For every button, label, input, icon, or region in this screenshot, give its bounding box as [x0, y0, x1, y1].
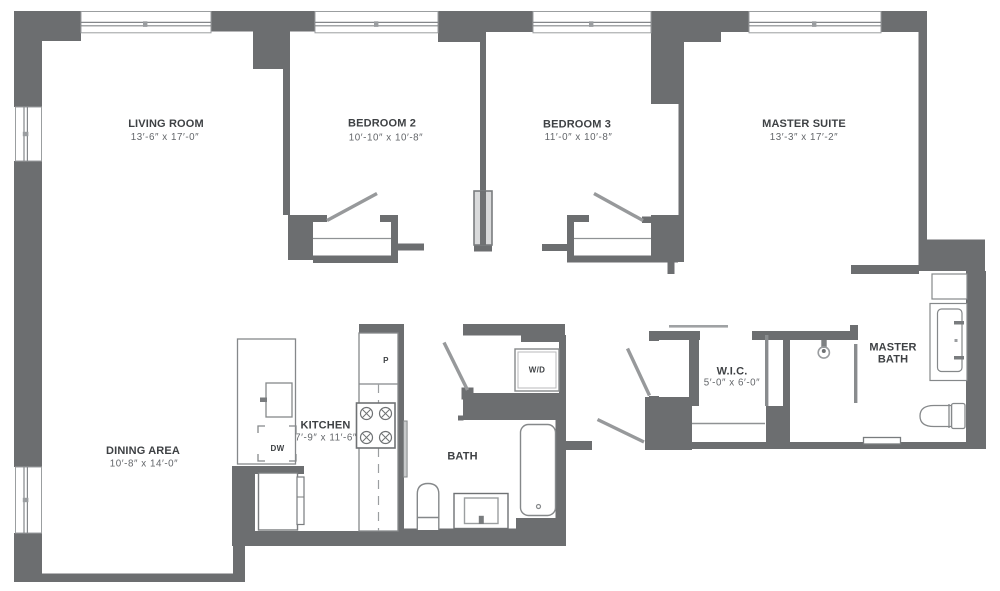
svg-text:W.I.C.: W.I.C. — [717, 366, 748, 378]
svg-text:BEDROOM 3: BEDROOM 3 — [543, 119, 611, 131]
svg-text:DW: DW — [271, 444, 285, 453]
svg-text:KITCHEN: KITCHEN — [301, 420, 351, 432]
svg-text:MASTER SUITE: MASTER SUITE — [762, 118, 846, 130]
svg-text:DINING AREA: DINING AREA — [106, 445, 180, 457]
svg-text:P: P — [383, 356, 389, 365]
svg-text:BATH: BATH — [878, 354, 908, 366]
svg-text:11′-0″ x 10′-8″: 11′-0″ x 10′-8″ — [545, 132, 613, 143]
svg-text:13′-6″ x 17′-0″: 13′-6″ x 17′-0″ — [131, 132, 199, 143]
svg-text:13′-3″ x 17′-2″: 13′-3″ x 17′-2″ — [770, 132, 838, 143]
svg-text:MASTER: MASTER — [869, 342, 916, 354]
svg-text:5′-0″ x 6′-0″: 5′-0″ x 6′-0″ — [704, 378, 760, 389]
svg-text:BEDROOM 2: BEDROOM 2 — [348, 118, 416, 130]
svg-text:BATH: BATH — [447, 451, 477, 463]
svg-text:LIVING ROOM: LIVING ROOM — [128, 118, 204, 130]
svg-text:7′-9″ x 11′-6″: 7′-9″ x 11′-6″ — [295, 433, 357, 444]
svg-text:W/D: W/D — [529, 366, 545, 375]
svg-text:10′-8″ x 14′-0″: 10′-8″ x 14′-0″ — [110, 459, 178, 470]
svg-text:10′-10″ x 10′-8″: 10′-10″ x 10′-8″ — [349, 133, 423, 144]
